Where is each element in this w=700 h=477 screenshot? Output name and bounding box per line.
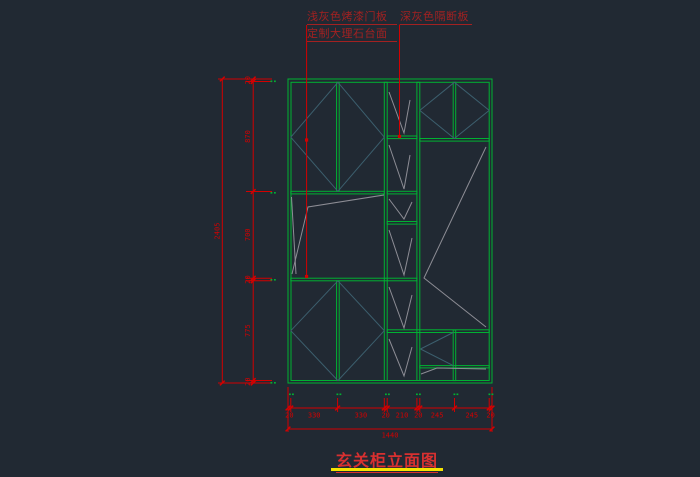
dimension-value: 330 — [355, 412, 368, 420]
dimension-value: 245 — [431, 412, 444, 420]
dimension-value: 700 — [244, 228, 252, 241]
dimension-value: 20 — [381, 412, 389, 420]
dimension-value: 20 — [486, 412, 494, 420]
dimension-value: 2405 — [213, 223, 221, 240]
depth-lines — [292, 92, 487, 376]
annotation-door-panel-text: 浅灰色烤漆门板 — [307, 10, 388, 23]
dimension-value: 20 — [414, 412, 422, 420]
dimension-value: 1440 — [382, 432, 399, 440]
node-markers — [271, 81, 494, 396]
dimension-value: 210 — [396, 412, 409, 420]
dimension-value: 775 — [244, 324, 252, 337]
dimension-value: 330 — [308, 412, 321, 420]
dimension-texts: 2033033020210202452452014402087070020775… — [213, 76, 495, 440]
annotation-partition-panel: 深灰色隔断板 — [400, 10, 472, 25]
leader-dots — [305, 135, 401, 278]
annotation-marble-top: 定制大理石台面 — [307, 27, 397, 42]
dimension-value: 20 — [244, 275, 252, 283]
dimension-value: 870 — [244, 130, 252, 143]
dimension-value: 20 — [244, 377, 252, 385]
annotation-partition-panel-text: 深灰色隔断板 — [400, 10, 469, 23]
title-underline-bar — [331, 468, 443, 471]
green-structure — [288, 79, 492, 383]
dimension-value: 20 — [244, 76, 252, 84]
cad-canvas[interactable]: 2033033020210202452452014402087070020775… — [0, 0, 700, 477]
dimension-value: 245 — [465, 412, 478, 420]
cabinet-elevation-drawing: 2033033020210202452452014402087070020775… — [0, 0, 700, 477]
dimension-value: 20 — [285, 412, 293, 420]
annotation-door-panel: 浅灰色烤漆门板 — [307, 10, 397, 25]
annotation-marble-top-text: 定制大理石台面 — [307, 27, 388, 40]
